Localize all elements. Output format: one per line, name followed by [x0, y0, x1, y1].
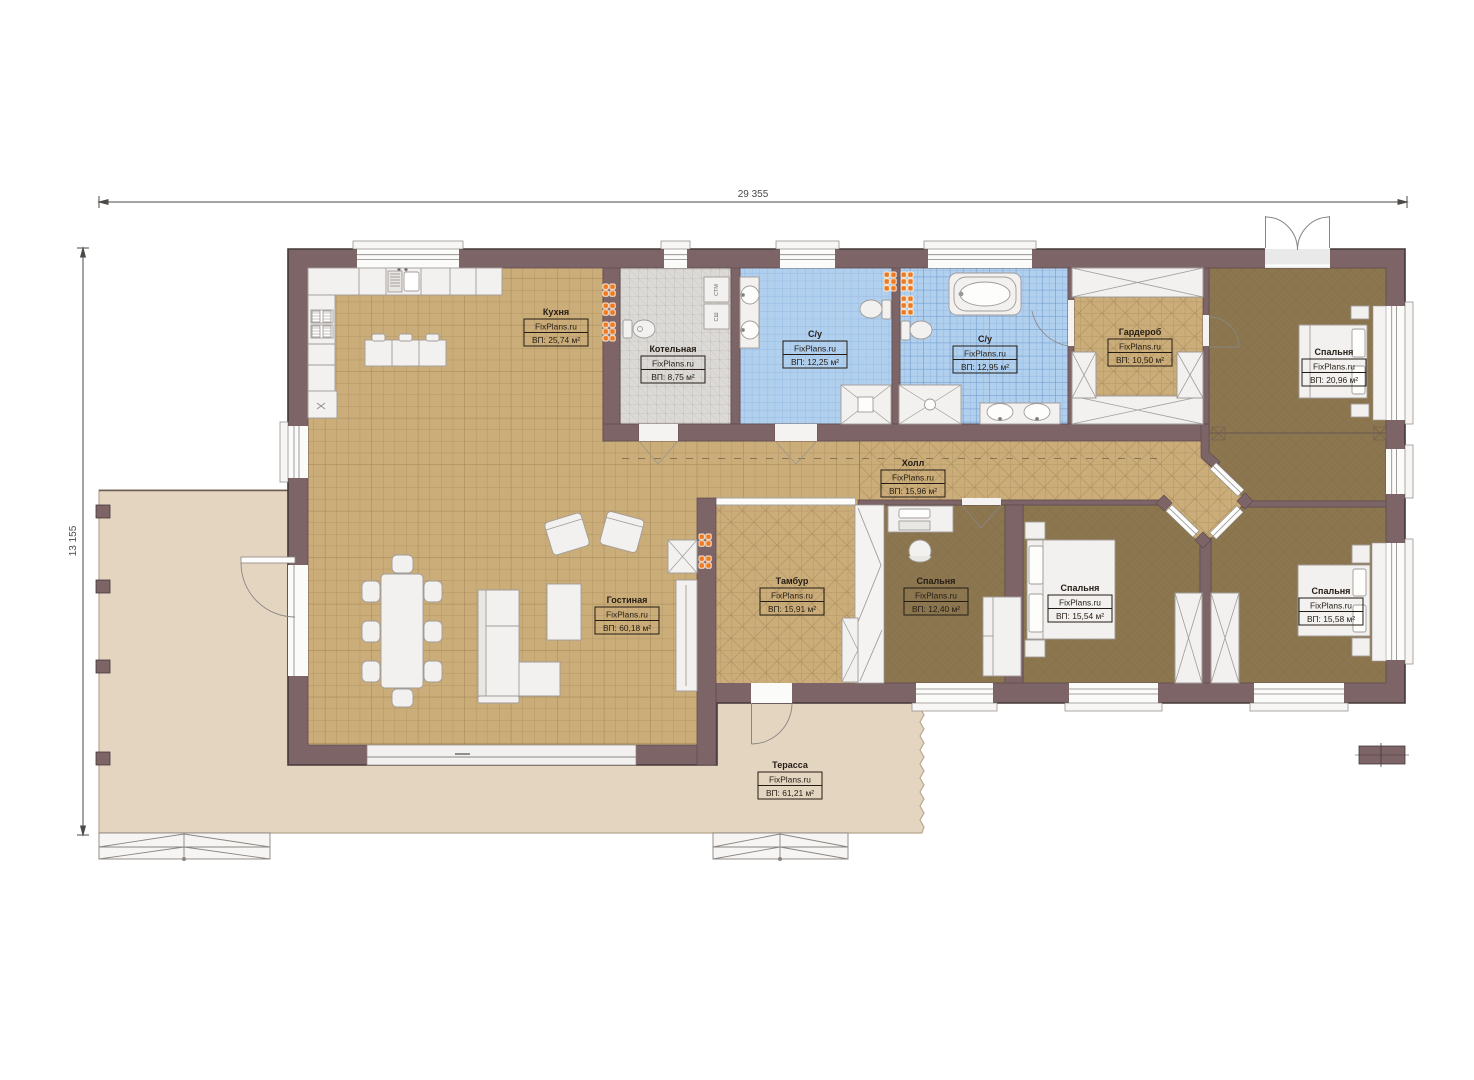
- svg-text:FixPlans.ru: FixPlans.ru: [1310, 601, 1352, 611]
- svg-text:FixPlans.ru: FixPlans.ru: [915, 591, 957, 601]
- svg-text:Котельная: Котельная: [649, 344, 696, 354]
- svg-text:FixPlans.ru: FixPlans.ru: [1313, 362, 1355, 372]
- svg-text:FixPlans.ru: FixPlans.ru: [535, 322, 577, 332]
- svg-text:Кухня: Кухня: [543, 307, 569, 317]
- svg-text:ВП: 15,91 м²: ВП: 15,91 м²: [768, 604, 816, 614]
- svg-text:СТМ: СТМ: [714, 284, 720, 296]
- svg-text:ВП: 12,25 м²: ВП: 12,25 м²: [791, 357, 839, 367]
- svg-text:Гардероб: Гардероб: [1119, 327, 1162, 337]
- svg-text:Спальня: Спальня: [1312, 586, 1351, 596]
- svg-text:13 155: 13 155: [68, 525, 79, 556]
- svg-text:ВП: 61,21 м²: ВП: 61,21 м²: [766, 788, 814, 798]
- svg-text:FixPlans.ru: FixPlans.ru: [1059, 598, 1101, 608]
- svg-text:Спальня: Спальня: [1061, 583, 1100, 593]
- svg-text:ВП: 20,96 м²: ВП: 20,96 м²: [1310, 375, 1358, 385]
- svg-text:FixPlans.ru: FixPlans.ru: [652, 359, 694, 369]
- svg-text:С/у: С/у: [808, 329, 822, 339]
- svg-text:ВП: 12,40 м²: ВП: 12,40 м²: [912, 604, 960, 614]
- svg-text:FixPlans.ru: FixPlans.ru: [964, 349, 1006, 359]
- svg-text:ВП: 25,74 м²: ВП: 25,74 м²: [532, 335, 580, 345]
- svg-text:Гостиная: Гостиная: [607, 595, 648, 605]
- svg-text:ВП: 15,96 м²: ВП: 15,96 м²: [889, 486, 937, 496]
- svg-text:ВП: 12,95 м²: ВП: 12,95 м²: [961, 362, 1009, 372]
- svg-text:ВП: 60,18 м²: ВП: 60,18 м²: [603, 623, 651, 633]
- svg-text:Холл: Холл: [902, 458, 925, 468]
- svg-text:ВП: 10,50 м²: ВП: 10,50 м²: [1116, 355, 1164, 365]
- svg-text:ВП: 15,54 м²: ВП: 15,54 м²: [1056, 611, 1104, 621]
- svg-text:FixPlans.ru: FixPlans.ru: [769, 775, 811, 785]
- svg-text:FixPlans.ru: FixPlans.ru: [771, 591, 813, 601]
- svg-text:Тамбур: Тамбур: [776, 576, 809, 586]
- svg-text:ВП: 15,58 м²: ВП: 15,58 м²: [1307, 614, 1355, 624]
- svg-text:Терасса: Терасса: [772, 760, 809, 770]
- svg-text:FixPlans.ru: FixPlans.ru: [606, 610, 648, 620]
- svg-text:ВП: 8,75 м²: ВП: 8,75 м²: [651, 372, 695, 382]
- svg-text:СШ: СШ: [714, 312, 720, 321]
- svg-text:Спальня: Спальня: [1315, 347, 1354, 357]
- svg-text:С/у: С/у: [978, 334, 992, 344]
- svg-text:FixPlans.ru: FixPlans.ru: [892, 473, 934, 483]
- svg-text:29 355: 29 355: [738, 189, 769, 200]
- svg-text:FixPlans.ru: FixPlans.ru: [1119, 342, 1161, 352]
- svg-text:Спальня: Спальня: [917, 576, 956, 586]
- svg-text:FixPlans.ru: FixPlans.ru: [794, 344, 836, 354]
